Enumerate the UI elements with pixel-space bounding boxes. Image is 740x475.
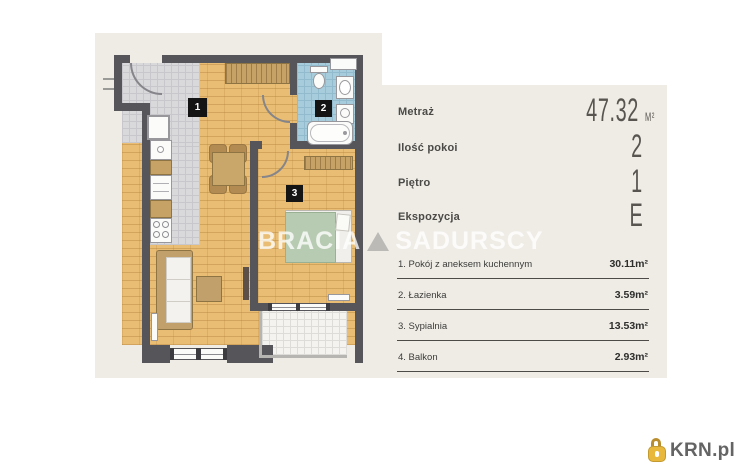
kitchen-cabinet	[150, 175, 172, 200]
window-frame	[170, 348, 174, 360]
cabinet-line	[153, 191, 169, 192]
wall	[142, 345, 170, 363]
room-name: 1. Pokój z aneksem kuchennym	[398, 259, 532, 270]
coffee-table	[196, 276, 222, 302]
room-name: 2. Łazienka	[398, 290, 447, 301]
sink-basin-icon	[157, 146, 164, 153]
bed-blanket	[285, 212, 336, 263]
floor-label: Piętro	[398, 177, 430, 189]
room-name: 4. Balkon	[398, 352, 438, 363]
room-area: 30.11m²	[609, 258, 648, 270]
krn-logo-text: KRN.pl	[670, 440, 735, 462]
room-list-item: 2. Łazienka 3.59m²	[397, 279, 649, 310]
room-area: 2.93m²	[615, 351, 648, 363]
window-frame	[296, 303, 300, 311]
dining-table	[212, 152, 245, 186]
toilet-tank-icon	[310, 66, 328, 73]
info-row-exposure: Ekspozycja E	[398, 197, 655, 231]
cushion-line	[166, 279, 191, 280]
entry-mark	[103, 88, 114, 90]
burner-icon	[162, 221, 169, 228]
toilet-icon	[313, 73, 325, 89]
exposure-label: Ekspozycja	[398, 211, 460, 223]
listing-image: Metraż 47.32 M² Ilość pokoi 2 Piętro 1 E…	[0, 0, 740, 475]
wall	[227, 345, 273, 363]
wall	[355, 55, 363, 363]
bedroom-wall	[250, 303, 268, 311]
balcony-floor	[262, 311, 347, 355]
tv	[243, 267, 249, 300]
window-frame	[196, 348, 201, 360]
pillow	[335, 213, 351, 231]
window-frame	[326, 303, 330, 311]
balcony-railing	[262, 355, 347, 358]
kitchen-counter	[150, 160, 172, 175]
window-frame	[223, 348, 227, 360]
washer-drum-icon	[340, 108, 350, 118]
burner-icon	[153, 221, 160, 228]
entry-mark	[103, 78, 114, 80]
basin-bowl-icon	[339, 80, 351, 95]
room-list-item: 4. Balkon 2.93m²	[397, 341, 649, 372]
cushion-line	[166, 301, 191, 302]
wall	[142, 103, 150, 363]
info-panel: Metraż 47.32 M² Ilość pokoi 2 Piętro 1 E…	[382, 85, 667, 378]
shaft	[330, 58, 357, 70]
room-area: 13.53m²	[609, 320, 648, 332]
room-number-bedroom: 3	[286, 185, 303, 202]
burner-icon	[162, 231, 169, 238]
room-area: 3.59m²	[615, 289, 648, 301]
info-row-rooms: Ilość pokoi 2	[398, 128, 655, 162]
wardrobe	[225, 63, 290, 84]
bedroom-wall	[330, 303, 363, 311]
room-number-bathroom: 2	[315, 100, 332, 117]
info-row-floor: Piętro 1	[398, 163, 655, 197]
floor-value: 1	[631, 163, 643, 200]
bedroom-wall	[250, 141, 258, 311]
room-list: 1. Pokój z aneksem kuchennym 30.11m² 2. …	[397, 248, 649, 372]
cabinet-line	[153, 183, 169, 184]
bathroom-wall	[290, 63, 297, 95]
floor-plan: 1 2 3	[95, 33, 382, 378]
burner-icon	[153, 231, 160, 238]
balcony-railing	[259, 311, 262, 358]
rooms-value: 2	[631, 128, 643, 165]
sofa-cushions	[166, 257, 191, 323]
wardrobe	[304, 156, 353, 170]
exposure-value: E	[629, 197, 643, 234]
window-frame	[268, 303, 272, 311]
drain-icon	[343, 131, 347, 135]
radiator	[328, 294, 350, 301]
rooms-label: Ilość pokoi	[398, 142, 458, 154]
room-list-item: 1. Pokój z aneksem kuchennym 30.11m²	[397, 248, 649, 279]
area-value: 47.32 M²	[586, 92, 655, 129]
radiator	[151, 313, 158, 341]
room-name: 3. Sypialnia	[398, 321, 447, 332]
shaft	[147, 115, 170, 140]
kitchen-counter	[150, 200, 172, 218]
krn-logo: KRN.pl	[647, 438, 735, 463]
area-label: Metraż	[398, 106, 434, 118]
padlock-icon	[647, 438, 667, 463]
info-row-area: Metraż 47.32 M²	[398, 92, 655, 126]
room-list-item: 3. Sypialnia 13.53m²	[397, 310, 649, 341]
room-number-living: 1	[188, 98, 207, 117]
